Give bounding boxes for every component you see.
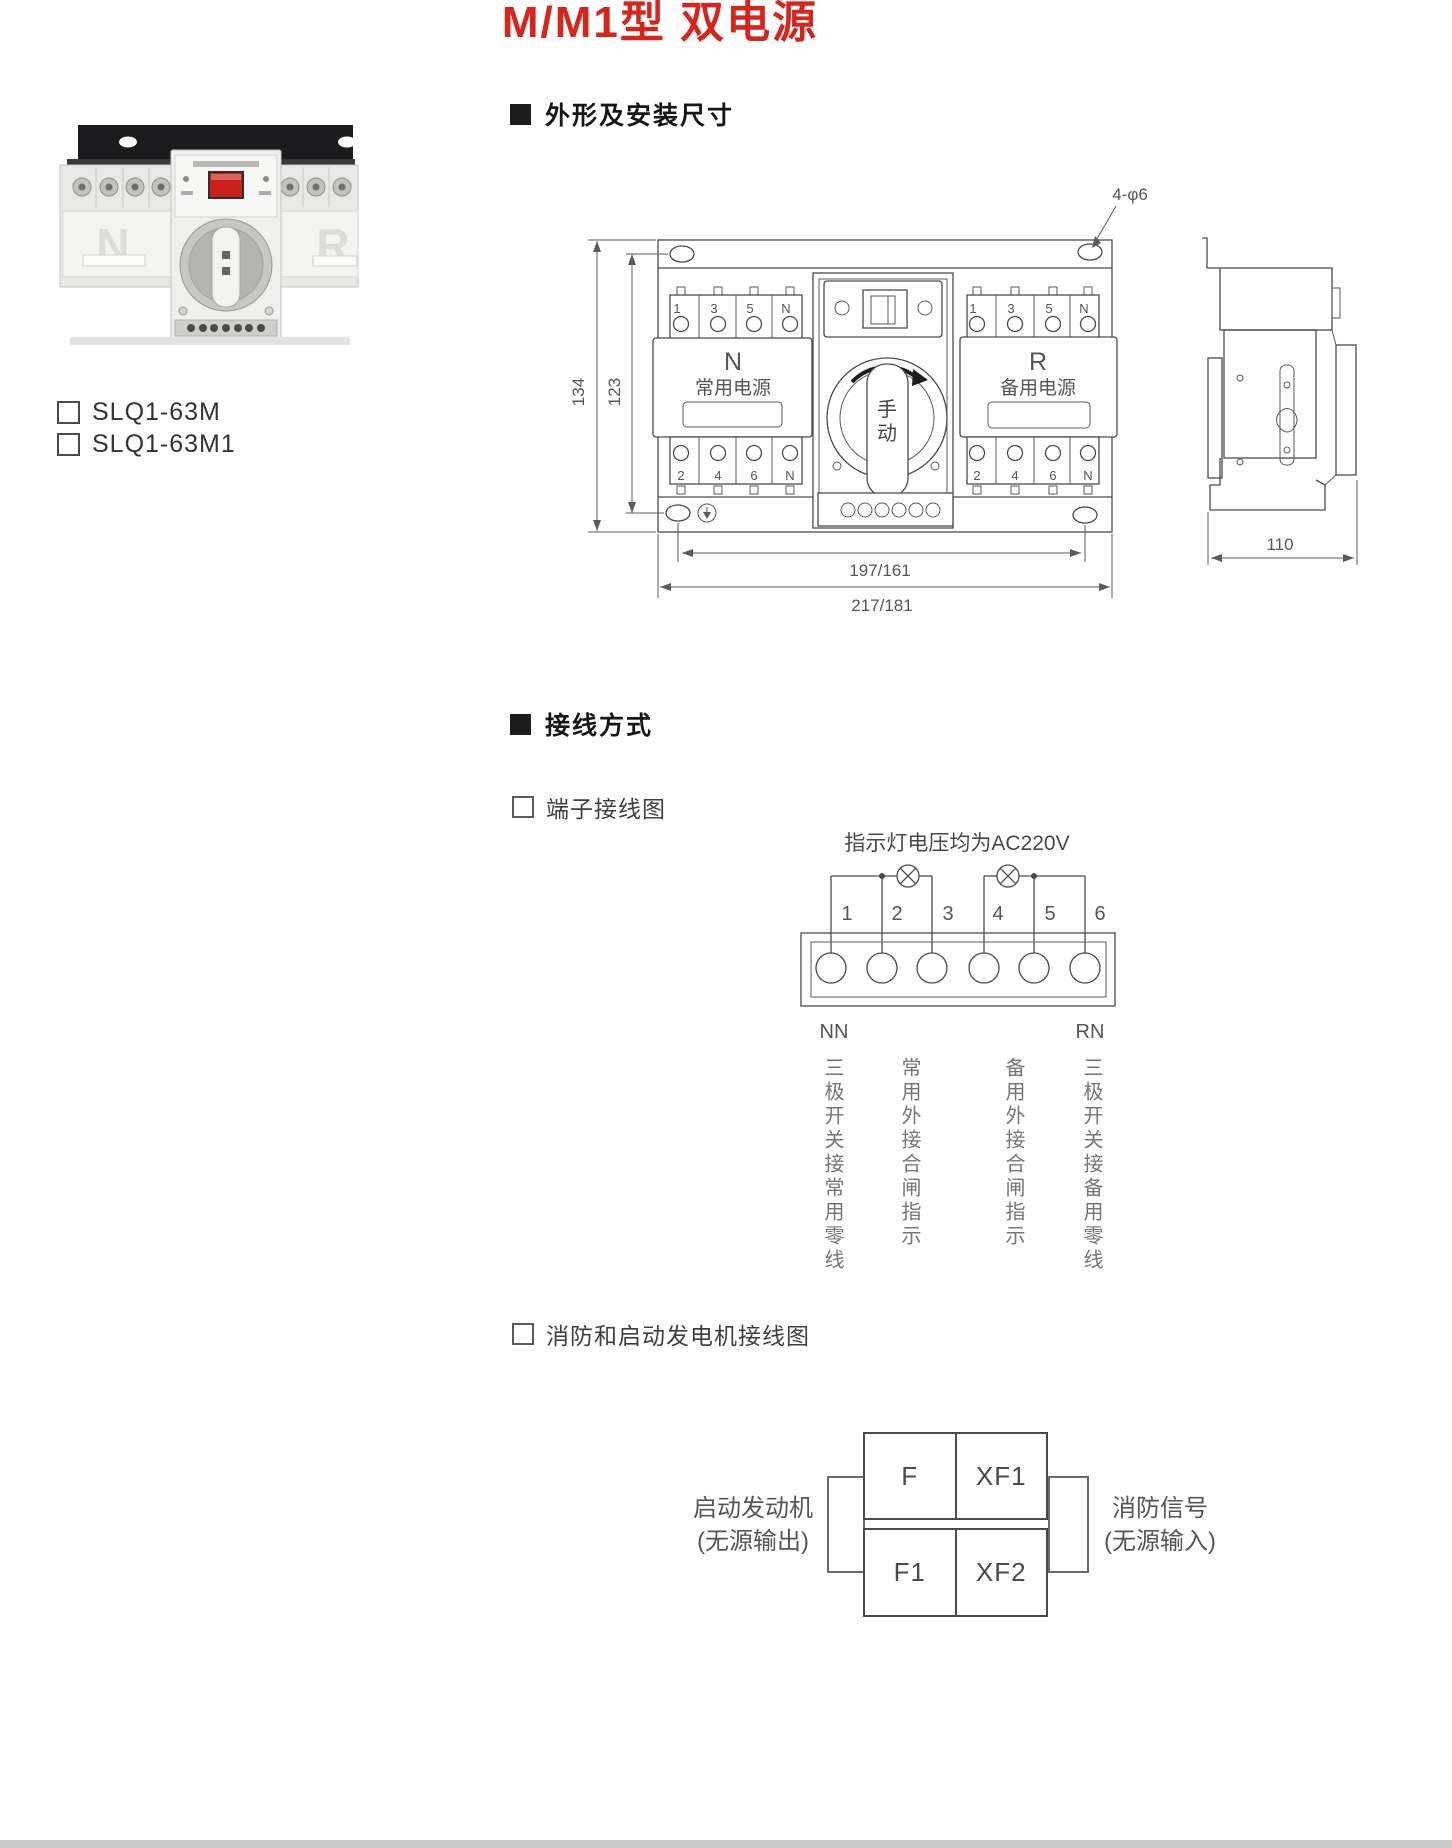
side-view-drawing: 110 <box>1202 238 1357 565</box>
dimension-drawings: 1 3 5 N N 常用电源 2 4 6 N <box>480 150 1452 650</box>
section-title: 接线方式 <box>545 706 653 742</box>
right-breaker: 1 3 5 N R 备用电源 2 4 6 N <box>960 287 1117 494</box>
model-row-slq1-63m1: SLQ1-63M1 <box>57 430 236 459</box>
fire-cell-f1: F1 <box>865 1530 957 1615</box>
fire-signal-caption-line2: (无源输入) <box>1075 1525 1245 1558</box>
terminal-block <box>801 933 1115 1006</box>
fire-terminal-box-top: F XF1 <box>863 1432 1048 1520</box>
subsection-title: 消防和启动发电机接线图 <box>546 1317 810 1351</box>
terminal-num: 1 <box>841 903 852 925</box>
rn-label: RN <box>1076 1021 1105 1043</box>
subsection-fire-diagram: 消防和启动发电机接线图 <box>512 1317 810 1351</box>
section-title: 外形及安装尺寸 <box>545 96 734 132</box>
model-label: SLQ1-63M <box>92 398 221 427</box>
dim-text: 110 <box>1266 535 1293 554</box>
left-breaker: 1 3 5 N N 常用电源 2 4 6 N <box>653 287 812 494</box>
section-square-icon <box>510 104 531 125</box>
terminal-num: 3 <box>1007 301 1014 316</box>
dim-text: 134 <box>569 378 588 406</box>
dim-text: 123 <box>605 378 624 406</box>
section-header-dimensions: 外形及安装尺寸 <box>510 96 734 132</box>
terminal-num: N <box>781 301 790 316</box>
knob-label: 手 <box>877 398 897 421</box>
ground-symbol-icon <box>698 504 716 522</box>
terminal-num: 1 <box>969 301 976 316</box>
breaker-label: 常用电源 <box>695 377 771 399</box>
breaker-label: 备用电源 <box>1000 377 1076 399</box>
breaker-name: N <box>724 348 742 376</box>
terminal-num: 4 <box>992 903 1003 925</box>
section-square-icon <box>510 714 531 735</box>
product-photo: N R <box>55 115 365 355</box>
terminal-desc-1: 三极开关接常用零线 <box>820 1057 844 1273</box>
photo-center-module <box>171 150 281 340</box>
terminal-num: 6 <box>1094 903 1105 925</box>
terminal-num: 5 <box>746 301 753 316</box>
fire-cell-xf2: XF2 <box>957 1530 1047 1615</box>
terminal-num: 3 <box>942 903 953 925</box>
fire-signal-caption-line1: 消防信号 <box>1075 1492 1245 1525</box>
dim-110: 110 <box>1208 480 1357 565</box>
terminal-num: 6 <box>1049 468 1056 483</box>
voltage-note: 指示灯电压均为AC220V <box>844 832 1069 855</box>
center-module: 手 动 <box>813 273 953 528</box>
terminal-num: 2 <box>891 903 902 925</box>
fire-signal-caption: 消防信号 (无源输入) <box>1075 1492 1245 1558</box>
generator-caption: 启动发动机 (无源输出) <box>668 1492 838 1558</box>
knob-label: 动 <box>877 422 897 445</box>
terminal-num: 6 <box>750 468 757 483</box>
front-view-drawing: 1 3 5 N N 常用电源 2 4 6 N <box>569 185 1148 615</box>
terminal-numbers: 1 2 3 4 5 6 <box>841 903 1105 925</box>
subsection-square-icon <box>512 796 534 818</box>
lamp-icon <box>997 865 1019 887</box>
dim-text: 197/161 <box>849 561 910 580</box>
photo-shadow <box>70 337 350 345</box>
terminal-num: N <box>1079 301 1088 316</box>
generator-caption-line1: 启动发动机 <box>668 1492 838 1525</box>
checkbox-slq1-63m[interactable] <box>57 401 80 424</box>
lamp-icon <box>897 865 919 887</box>
terminal-desc-2: 常用外接合闸指示 <box>897 1057 921 1249</box>
hole-callout: 4-φ6 <box>1112 185 1148 204</box>
fire-cell-xf1: XF1 <box>957 1434 1047 1518</box>
terminal-num: N <box>1083 468 1092 483</box>
subsection-terminal-diagram: 端子接线图 <box>512 790 666 824</box>
terminal-num: 3 <box>710 301 717 316</box>
checkbox-slq1-63m1[interactable] <box>57 433 80 456</box>
fire-terminal-box-bottom: F1 XF2 <box>863 1528 1048 1617</box>
subsection-square-icon <box>512 1323 534 1345</box>
terminal-desc-3: 备用外接合闸指示 <box>1001 1057 1025 1249</box>
page-title: M/M1型 双电源 <box>420 0 900 50</box>
datasheet-page: M/M1型 双电源 N <box>0 0 1452 1848</box>
subsection-title: 端子接线图 <box>546 790 666 824</box>
nn-label: NN <box>820 1021 849 1043</box>
breaker-name: R <box>1029 348 1047 376</box>
terminal-num: 5 <box>1044 903 1055 925</box>
model-label: SLQ1-63M1 <box>92 430 236 459</box>
terminal-num: 2 <box>973 468 980 483</box>
terminal-num: 5 <box>1045 301 1052 316</box>
terminal-num: 2 <box>677 468 684 483</box>
generator-caption-line2: (无源输出) <box>668 1525 838 1558</box>
model-row-slq1-63m: SLQ1-63M <box>57 398 221 427</box>
terminal-num: 4 <box>714 468 721 483</box>
terminal-num: 4 <box>1011 468 1018 483</box>
terminal-num: N <box>785 468 794 483</box>
page-bottom-edge <box>0 1840 1452 1848</box>
terminal-num: 1 <box>673 301 680 316</box>
dim-text: 217/181 <box>851 596 912 615</box>
terminal-wiring-diagram: 指示灯电压均为AC220V <box>780 820 1140 1055</box>
fire-cell-f: F <box>865 1434 957 1518</box>
terminal-desc-4: 三极开关接备用零线 <box>1079 1057 1103 1273</box>
section-header-wiring: 接线方式 <box>510 706 653 742</box>
